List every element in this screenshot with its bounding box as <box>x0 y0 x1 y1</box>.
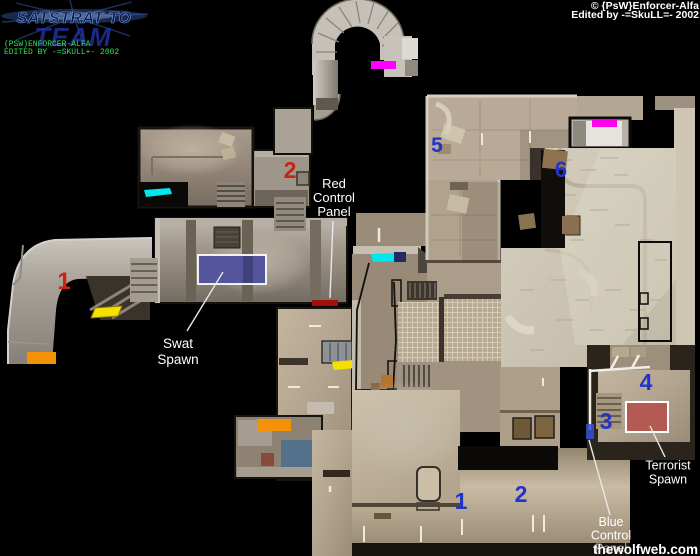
svg-text:thewolfweb.com: thewolfweb.com <box>593 542 698 556</box>
svg-text:Blue: Blue <box>598 515 623 529</box>
svg-text:5: 5 <box>431 134 443 157</box>
svg-text:1: 1 <box>455 488 468 514</box>
svg-text:2: 2 <box>515 481 528 507</box>
svg-text:Spawn: Spawn <box>157 352 198 367</box>
svg-text:2: 2 <box>284 157 297 183</box>
svg-text:3: 3 <box>600 408 613 434</box>
svg-text:4: 4 <box>640 369 653 395</box>
svg-text:1: 1 <box>57 268 70 295</box>
svg-text:Control: Control <box>313 190 355 205</box>
svg-text:Swat: Swat <box>163 336 193 351</box>
svg-text:Terrorist: Terrorist <box>645 459 691 473</box>
svg-text:Panel: Panel <box>317 204 350 219</box>
svg-text:Edited by -=SkuLL=- 2002: Edited by -=SkuLL=- 2002 <box>571 9 699 21</box>
svg-text:Red: Red <box>322 176 346 191</box>
svg-text:EDITED BY -=SKULL+- 2002: EDITED BY -=SKULL+- 2002 <box>4 48 119 57</box>
svg-text:Control: Control <box>591 529 631 543</box>
svg-text:6: 6 <box>555 157 567 182</box>
svg-text:Spawn: Spawn <box>649 473 687 487</box>
